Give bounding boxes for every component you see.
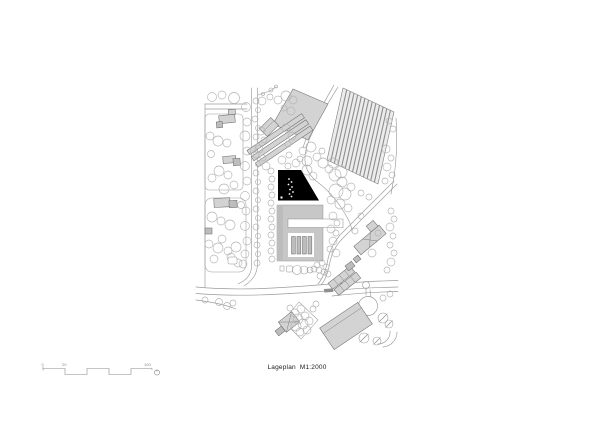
tree-symbol [333,230,339,236]
tree-symbol [210,255,218,263]
skylight-bar [308,237,312,255]
tree-symbol [313,153,321,161]
existing-building [349,219,386,254]
scale-tick-label: 100 [144,362,151,367]
tree-symbol [268,184,274,190]
tree-symbol [253,206,259,212]
tree-symbol [255,197,260,202]
hatched-tree-symbol [359,333,369,343]
tree-symbol [287,305,293,311]
skylight-bar [292,237,296,255]
tree-symbol [205,240,213,248]
tree-symbol [390,233,396,239]
portfolio-sheet: 0 20 100 Lageplan M1:2000 [0,0,600,424]
tree-symbol [387,258,395,266]
tree-symbol [269,240,275,246]
skylight-bar [297,237,301,255]
tree-symbol [339,188,351,200]
tree-symbol [306,142,316,152]
tree-symbol [332,249,340,257]
tree-symbol [313,301,319,307]
tree-symbol [347,183,355,191]
tree-symbol [243,237,251,245]
house [215,109,236,128]
scale-tick-label: 20 [62,362,67,367]
tree-symbol [213,136,223,146]
tree-symbol [366,194,372,200]
tree-symbol [217,217,225,225]
tree-symbol [268,200,274,206]
block-boundary [205,198,246,272]
tree-symbol [274,96,282,104]
hatched-tree-symbol [373,337,381,345]
house [205,228,212,234]
tree-symbol [382,178,388,184]
hatched-tree-symbol [378,313,388,323]
tree-symbol [267,94,273,100]
tree-symbol [214,166,224,176]
tree-symbol [383,163,391,171]
tree-symbol [285,163,291,169]
tree-symbol [218,91,226,99]
tree-symbol [368,249,376,257]
tree-symbol [240,131,250,141]
tree-symbol [269,176,275,182]
tree-symbol [388,208,394,214]
tree-symbol [213,243,223,253]
tree-symbol [208,151,215,158]
tree-symbol [305,317,313,325]
sports-field [327,83,394,190]
house [223,155,241,166]
tree-symbol [309,172,317,180]
tree-symbol [262,162,270,170]
tree-symbol [386,223,394,231]
tree-symbol [269,256,275,262]
tree-symbol [225,220,235,230]
tree-symbol [206,132,214,140]
tree-symbol [388,155,394,161]
tree-symbol [238,202,245,209]
tree-symbol [327,196,335,204]
skylight-bar [303,237,307,255]
tree-symbol [219,184,229,194]
block-boundary [205,114,243,190]
tree-symbol [269,224,275,230]
tree-symbol [230,181,238,189]
tree-symbol [352,228,358,234]
tree-symbol [255,179,260,184]
tree-symbol [218,235,226,243]
tree-symbol [224,247,232,255]
tree-symbol [231,242,241,252]
tree-symbol [253,188,259,194]
tree-symbol [254,260,260,266]
tree-symbol [216,299,223,306]
tree-symbol [255,251,260,256]
tree-symbol [268,248,274,254]
tree-symbol [268,232,274,238]
plan-caption: Lageplan M1:2000 [197,364,397,371]
tree-symbol [224,171,232,179]
tree-symbol [253,224,259,230]
courtyard-bar [288,219,343,228]
tree-symbol [302,156,312,166]
site-plan-drawing: 0 20 100 [0,0,600,424]
tree-symbol [387,242,393,248]
tree-symbol [208,93,217,102]
tree-symbol [255,215,260,220]
north-marker [154,370,159,375]
bus-stop-bar [324,288,333,292]
tree-symbol [344,204,352,212]
tree-symbol [269,192,275,198]
tree-symbol [358,190,364,196]
project-building [278,170,319,201]
tree-symbol [241,162,250,171]
tree-symbol [254,242,260,248]
tree-symbol [241,192,250,201]
tree-symbol [223,139,231,147]
tree-symbol [230,300,236,306]
tree-symbol [255,233,260,238]
tree-symbol [253,134,259,140]
tree-symbol [390,126,396,132]
tree-symbol [317,273,323,279]
tree-symbol [384,267,390,273]
tree-symbol [286,152,292,158]
existing-building [320,302,373,349]
hatched-tree-symbol [385,320,393,328]
tree-symbol [208,174,216,182]
tree-symbol [241,250,249,258]
tree-symbol [241,222,250,231]
shed [353,255,361,263]
tree-symbol [297,305,305,313]
tree-symbol [255,107,260,112]
scale-bar: 0 20 100 [42,362,160,375]
tree-symbol [202,297,208,303]
tree-symbol [335,199,345,209]
tree-symbol [269,208,275,214]
tree-symbol [319,148,325,154]
tree-symbol [243,118,251,126]
house [214,197,237,208]
tree-symbol [380,295,386,301]
tree-symbol [243,177,251,185]
tree-symbol [391,216,397,222]
tree-symbol [252,116,258,122]
tree-symbol [391,250,397,256]
tree-symbol [268,216,274,222]
tree-symbol [278,156,286,164]
tree-symbol [337,177,347,187]
tree-symbol [292,159,300,167]
tree-symbol [318,158,328,168]
tree-symbol [229,93,240,104]
tree-symbol [207,212,217,222]
scale-tick-label: 0 [42,362,45,367]
tree-symbol [253,170,259,176]
